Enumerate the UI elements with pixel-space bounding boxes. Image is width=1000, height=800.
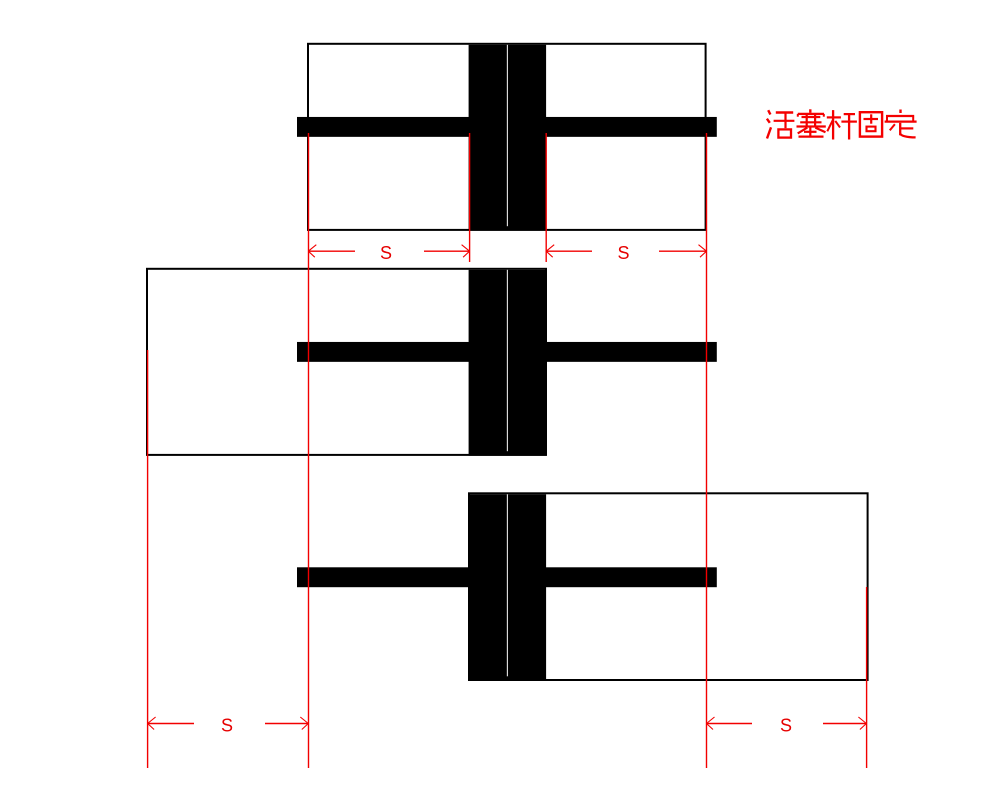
svg-text:S: S <box>380 243 392 263</box>
svg-text:S: S <box>780 716 792 736</box>
svg-text:S: S <box>617 243 629 263</box>
svg-text:S: S <box>221 716 233 736</box>
